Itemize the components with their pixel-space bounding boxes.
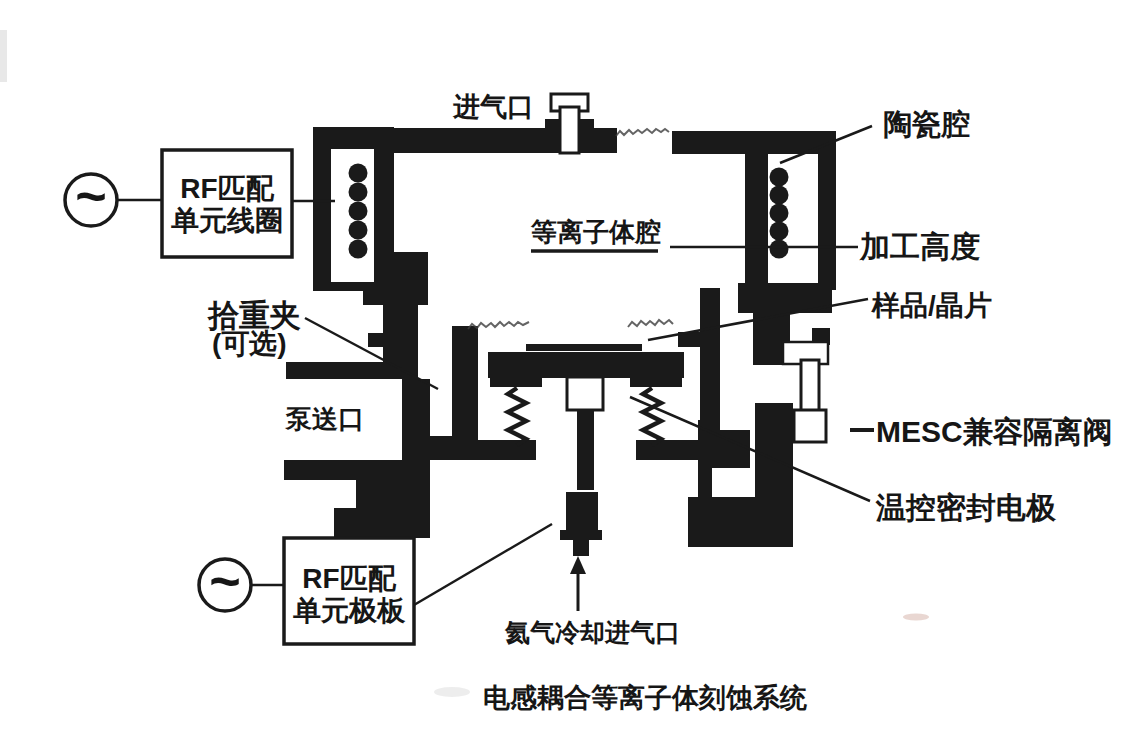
scan-noise: [468, 322, 529, 329]
helium-arrow: [570, 556, 586, 611]
coil-turn: [349, 164, 368, 183]
label-ceramic-chamber: 陶瓷腔: [883, 108, 970, 140]
label-process-height: 加工高度: [859, 230, 980, 263]
right-tower-outer-wall: [818, 131, 836, 290]
coil-turn: [770, 186, 789, 205]
valve-stem: [801, 360, 819, 412]
label-clamp-optional: (可选): [212, 328, 287, 359]
rf-plate-circuit: ~ RF匹配 单元极板: [199, 524, 552, 644]
rf-plate-box-line1: RF匹配: [302, 563, 396, 594]
rf-coil-box-line2: 单元线圈: [171, 205, 283, 236]
arrow-head: [570, 556, 586, 574]
label-gas-inlet: 进气口: [452, 92, 534, 122]
coil-turn: [349, 240, 368, 259]
left-lower-step: [334, 508, 356, 538]
electrode-shaft: [577, 410, 594, 490]
left-lower-mass: [356, 480, 430, 538]
left-spring-shelf: [478, 440, 536, 460]
pump-shelf-bar: [286, 362, 418, 379]
right-spring-shelf: [636, 440, 700, 460]
pump-lower-bar: [284, 460, 430, 480]
feedthrough-tip: [573, 540, 589, 556]
rf-coil-circuit: ~ RF匹配 单元线圈: [65, 150, 335, 257]
rf-coil-box-line1: RF匹配: [180, 173, 274, 204]
wafer-platform: [488, 352, 684, 378]
left-bellows-spring: [508, 388, 526, 445]
ac-symbol: ~: [75, 166, 107, 226]
scan-noise: [628, 320, 673, 327]
right-base-mass: [688, 497, 793, 547]
label-mesc-valve: MESC兼容隔离阀: [876, 415, 1113, 448]
icp-etch-system-diagram: ~ RF匹配 单元线圈 ~ RF匹配 单元极板 进气口 陶瓷: [0, 0, 1137, 756]
nozzle-foot-left: [545, 119, 560, 131]
scan-noise: [616, 129, 669, 136]
scan-smudge: [903, 614, 929, 621]
inner-left-wall: [452, 326, 478, 460]
wafer: [526, 344, 642, 351]
valve-body: [794, 410, 826, 442]
left-step-block: [363, 287, 428, 305]
coil-turn: [349, 221, 368, 240]
left-column: [383, 303, 418, 365]
rf-plate-box-line2: 单元极板: [293, 595, 406, 626]
nozzle-stem: [560, 107, 579, 153]
coil-turn: [770, 240, 789, 259]
left-column-notch: [368, 333, 383, 347]
nozzle-foot-right: [579, 119, 594, 131]
coil-turn: [349, 183, 368, 202]
coil-turn: [770, 204, 789, 223]
scan-edge-artifact: [0, 30, 7, 82]
figure-title: 电感耦合等离子体刻蚀系统: [483, 683, 807, 713]
left-spring-cup: [490, 378, 542, 387]
coil-turn: [770, 222, 789, 241]
label-plasma-chamber: 等离子体腔: [530, 217, 661, 247]
induction-coil-right: [770, 168, 789, 259]
label-pump-port: 泵送口: [284, 404, 364, 434]
scan-smudge-2: [434, 687, 470, 697]
inner-left-foot: [424, 436, 452, 460]
coil-turn: [770, 168, 789, 187]
top-wall-mid: [577, 128, 617, 153]
ac-symbol: ~: [209, 551, 241, 611]
label-sample-wafer: 样品/晶片: [871, 290, 992, 321]
feedthrough-block: [566, 492, 598, 530]
electrode-insulator: [567, 377, 603, 410]
right-spring-cup: [630, 378, 682, 387]
feedthrough-flange: [560, 530, 602, 540]
top-wall-left: [383, 128, 562, 153]
coil-turn: [349, 202, 368, 221]
label-temp-electrode: 温控密封电极: [875, 491, 1057, 524]
induction-coil-left: [349, 164, 368, 259]
right-bellows-spring: [643, 388, 661, 445]
wire-platebox-to-electrode: [414, 524, 552, 605]
label-helium-inlet: 氦气冷却进气口: [504, 618, 680, 646]
